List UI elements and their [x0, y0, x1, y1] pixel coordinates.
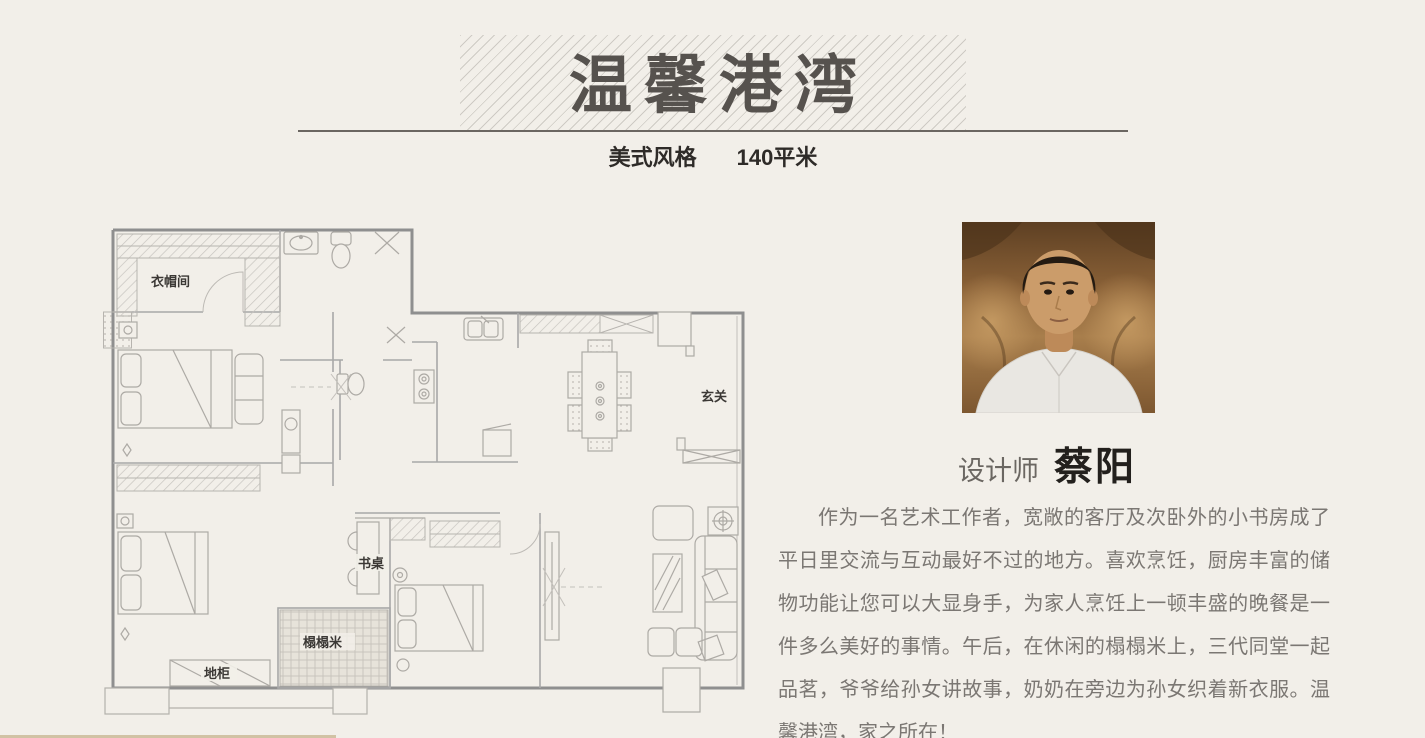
page: 温馨港湾 美式风格140平米 — [0, 0, 1425, 738]
third-bed — [395, 532, 559, 671]
second-bed — [117, 514, 270, 686]
master-bed — [118, 322, 263, 456]
designer-heading: 设计师 蔡阳 — [958, 436, 1136, 492]
page-title: 温馨港湾 — [569, 49, 869, 118]
designer-role-label: 设计师 — [958, 449, 1039, 488]
designer-bio: 作为一名艺术工作者，宽敞的客厅及次卧外的小书房成了平日里交流与互动最好不过的地方… — [778, 497, 1330, 738]
subtitle: 美式风格140平米 — [460, 140, 966, 172]
title-divider — [298, 130, 1128, 132]
area-label: 140平米 — [737, 145, 818, 170]
title-stripe-band: 温馨港湾 — [460, 35, 966, 131]
balcony — [105, 688, 367, 714]
living-room-furniture — [648, 506, 738, 712]
label-entrance: 玄关 — [701, 389, 727, 404]
label-cloakroom: 衣帽间 — [151, 274, 190, 289]
label-tatami: 榻榻米 — [303, 635, 343, 650]
style-label: 美式风格 — [609, 145, 697, 170]
kitchen-fixtures — [414, 312, 694, 456]
designer-photo — [962, 222, 1155, 413]
label-floor-cabinet: 地柜 — [204, 666, 230, 681]
designer-name: 蔡阳 — [1054, 436, 1136, 492]
entry-furniture — [677, 438, 740, 463]
floorplan-drawing: 衣帽间 玄关 书桌 榻榻米 地柜 — [103, 224, 763, 720]
label-desk: 书桌 — [358, 556, 385, 571]
dining-set — [568, 340, 631, 451]
bathroom-fixtures — [282, 232, 405, 473]
